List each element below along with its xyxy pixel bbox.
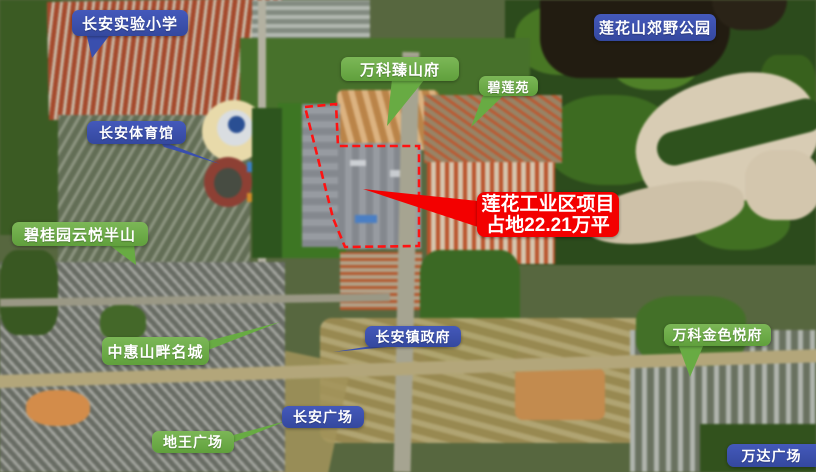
project-callout-line2: 占地22.21万平 [486, 215, 610, 236]
map-label-bilianyuan: 碧莲苑 [479, 76, 538, 96]
project-callout-box: 莲花工业区项目 占地22.21万平 [477, 192, 619, 237]
satellite-map: 长安实验小学 莲花山郊野公园 万科臻山府 碧莲苑 长安体育馆 碧桂园云悦半山 中… [0, 0, 816, 472]
label-arrow-shanpan [204, 322, 280, 350]
label-tail-yunyuebanshan [108, 244, 136, 265]
map-label-zhonghui-shanpan-mingcheng: 中惠山畔名城 [102, 337, 209, 365]
map-label-wanda-plaza: 万达广场 [727, 444, 816, 467]
label-tail-jinseyuefu [678, 344, 704, 377]
map-label-changan-plaza: 长安广场 [282, 406, 364, 428]
map-label-changan-stadium: 长安体育馆 [87, 121, 186, 144]
map-label-lianhuashan-country-park: 莲花山郊野公园 [594, 14, 716, 41]
map-label-changan-experimental-primary-school: 长安实验小学 [72, 10, 188, 36]
map-label-biguiyuan-yunyue-banshan: 碧桂园云悦半山 [12, 222, 148, 246]
project-callout-pointer [363, 189, 478, 227]
map-label-vanke-jinse-yuefu: 万科金色悦府 [664, 324, 771, 346]
label-tail-zhenshanfu [387, 79, 425, 126]
label-tail-bilianyuan [471, 93, 506, 127]
project-callout-line1: 莲花工业区项目 [481, 194, 614, 215]
map-label-changan-town-government: 长安镇政府 [365, 326, 461, 347]
map-label-diwang-plaza: 地王广场 [152, 431, 234, 453]
project-boundary-dashed [305, 104, 419, 247]
map-label-vanke-zhenshanfu: 万科臻山府 [341, 57, 459, 81]
label-arrow-diwang [230, 421, 286, 443]
